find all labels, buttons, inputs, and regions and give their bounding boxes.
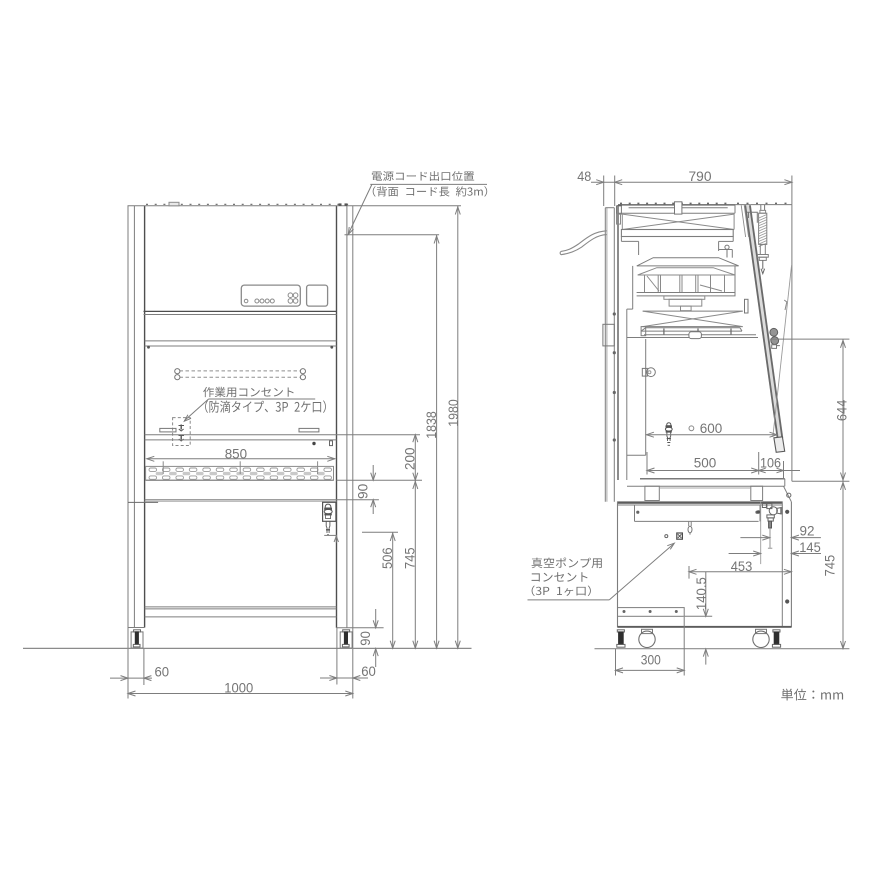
svg-text:644: 644 bbox=[833, 399, 849, 421]
svg-text:500: 500 bbox=[694, 455, 717, 471]
svg-text:850: 850 bbox=[225, 445, 248, 461]
svg-text:453: 453 bbox=[731, 558, 753, 574]
svg-text:506: 506 bbox=[379, 547, 395, 569]
svg-text:745: 745 bbox=[402, 547, 418, 569]
svg-text:60: 60 bbox=[155, 663, 170, 679]
svg-text:1000: 1000 bbox=[224, 679, 253, 695]
svg-text:90: 90 bbox=[355, 484, 371, 500]
svg-text:1980: 1980 bbox=[445, 399, 461, 427]
svg-text:92: 92 bbox=[800, 523, 815, 539]
svg-text:600: 600 bbox=[700, 420, 723, 436]
svg-text:200: 200 bbox=[402, 447, 418, 470]
svg-text:745: 745 bbox=[821, 555, 837, 577]
svg-text:1838: 1838 bbox=[423, 411, 439, 439]
svg-text:300: 300 bbox=[641, 651, 661, 667]
svg-text:60: 60 bbox=[361, 663, 376, 679]
svg-text:48: 48 bbox=[577, 168, 591, 184]
svg-text:106: 106 bbox=[760, 455, 781, 471]
svg-text:790: 790 bbox=[689, 168, 712, 184]
svg-text:140.5: 140.5 bbox=[693, 577, 709, 610]
svg-text:90: 90 bbox=[357, 631, 373, 646]
svg-text:145: 145 bbox=[799, 539, 821, 555]
